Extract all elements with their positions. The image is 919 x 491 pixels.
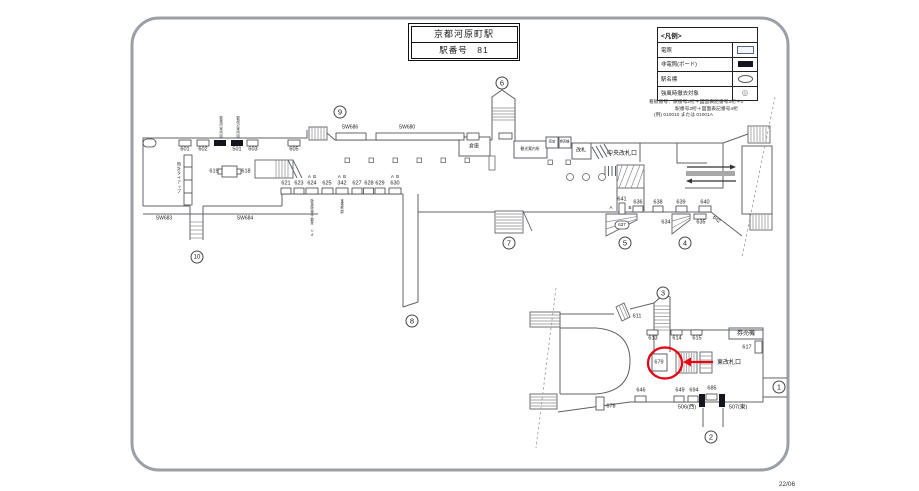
station-sign-swatch: [738, 75, 753, 83]
label-vtext-clock: 時計タイアップ: [177, 162, 181, 194]
circled-number-8: 8: [406, 315, 419, 328]
highlight-circle: [648, 348, 682, 379]
board-numbering-notes: 看板番号：駅番号2桁＋図面表記番号3桁＋0 駅番号2桁＋図面表記番号4桁 (例)…: [649, 100, 743, 120]
label-b621: 621: [281, 181, 290, 187]
label-room-baiten: 売店: [549, 140, 556, 144]
label-room-soko: 倉庫: [469, 145, 479, 150]
label-ab626: A B: [338, 174, 346, 179]
label-b635: 635: [696, 220, 705, 226]
label-b626: 342: [337, 181, 346, 187]
label-vtext-626: 宝塚歌劇: [339, 199, 342, 214]
circled-number-2: 2: [705, 431, 718, 444]
label-gate-higashi: 東改札口: [717, 360, 741, 366]
label-b625: 625: [322, 181, 331, 187]
label-ab624: A B: [308, 174, 316, 179]
label-b641-a: A: [609, 206, 612, 211]
legend-row-lit: 電照: [658, 43, 757, 58]
label-b641-b: B: [628, 206, 631, 211]
lit-boards: [143, 133, 762, 410]
label-b641: 641: [617, 197, 626, 203]
label-b623: 623: [294, 181, 303, 187]
label-sw684: SW684: [237, 217, 253, 222]
label-b618: 618: [241, 169, 250, 175]
circled-number-9: 9: [334, 106, 347, 119]
lit-board-swatch: [737, 46, 754, 54]
label-b624: 624: [307, 181, 316, 187]
label-b634: 634: [661, 220, 670, 226]
label-b630: 630: [390, 181, 399, 187]
label-b613: 613: [648, 336, 657, 342]
label-room-kaisatsu: 改札: [576, 149, 586, 154]
station-map-svg: [0, 0, 919, 491]
circled-number-10: 10: [191, 251, 204, 264]
label-b639: 639: [676, 200, 685, 206]
label-b501: 501: [232, 147, 241, 153]
label-b679: 679: [654, 360, 663, 366]
label-room-kanko: 観光案内所: [521, 148, 540, 152]
legend-title: <凡例>: [658, 28, 757, 43]
circled-number-3: 3: [657, 287, 670, 300]
pillars: [345, 156, 606, 181]
label-sw680: SW680: [399, 126, 415, 131]
label-b601: 601: [180, 147, 189, 153]
circled-number-4: 4: [679, 237, 692, 250]
label-b629: 629: [375, 181, 384, 187]
label-sw683: SW683: [156, 217, 172, 222]
station-name: 京都河原町駅: [411, 26, 518, 43]
station-number: 駅番号 81: [411, 43, 518, 59]
label-b611: 611: [633, 314, 642, 320]
label-b685: 685: [707, 386, 716, 392]
label-b506: 506(西): [678, 405, 696, 411]
label-b646: 646: [636, 388, 645, 394]
label-sw686: SW686: [342, 126, 358, 131]
remove-target-icon: ◎: [742, 89, 749, 97]
label-room-kenbaiki-btm: 券売機: [737, 331, 755, 337]
label-ab630: A B: [391, 174, 399, 179]
label-b617: 617: [742, 345, 751, 351]
label-b602: 602: [198, 147, 207, 153]
label-b637: 637: [618, 223, 626, 228]
legend-row-board: 非電照(ボード): [658, 58, 757, 73]
legend-row-oval: 駅名標: [658, 72, 757, 87]
label-b615: 615: [692, 336, 701, 342]
label-b614: 614: [672, 336, 681, 342]
label-vtext-624: 阪急阪神不動産 ジオ: [309, 199, 312, 237]
legend-box: <凡例> 電照 非電照(ボード) 駅名標 強風時撤去対象 ◎: [657, 27, 758, 101]
label-b636: 636: [633, 200, 642, 206]
legend-row-remove: 強風時撤去対象 ◎: [658, 87, 757, 101]
label-b507: 507(東): [729, 405, 747, 411]
circled-number-6: 6: [496, 77, 509, 90]
label-b619: 619: [209, 169, 218, 175]
label-b605: 605: [289, 147, 298, 153]
label-b678: 678: [606, 404, 615, 410]
highlight-arrow-icon: [683, 358, 713, 367]
revision-date: 22/06: [772, 481, 802, 488]
label-room-kenbaiki-top: 券売機: [560, 140, 570, 143]
escalator-direction-arrows: [686, 165, 736, 184]
label-b638: 638: [653, 200, 662, 206]
unlit-board-swatch: [738, 61, 753, 67]
station-title-box: 京都河原町駅 駅番号 81: [408, 23, 520, 61]
label-gate-chuo: 中央改札口: [607, 151, 637, 157]
escalator-divider: [686, 171, 735, 176]
circled-number-1: 1: [773, 381, 786, 394]
circled-number-7: 7: [503, 237, 516, 250]
label-b640: 640: [700, 200, 709, 206]
label-vtext-board1: 駅構内案内図: [218, 116, 221, 138]
circled-number-5: 5: [619, 237, 632, 250]
label-b649: 649: [675, 388, 684, 394]
label-b603: 603: [248, 147, 257, 153]
label-b650: 694: [689, 388, 698, 394]
label-b627: 627: [352, 181, 361, 187]
label-b628: 628: [364, 181, 373, 187]
label-vtext-board2: 駅周辺案内図: [235, 116, 238, 138]
station-signage-map-page: 京都河原町駅 駅番号 81 <凡例> 電照 非電照(ボード) 駅名標 強風時撤去…: [0, 0, 919, 491]
